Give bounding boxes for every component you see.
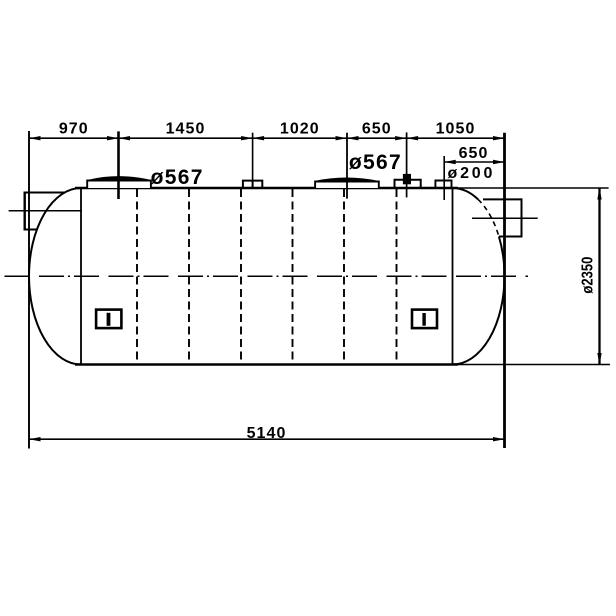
svg-text:1050: 1050 [436, 121, 476, 138]
svg-text:1450: 1450 [166, 121, 206, 138]
svg-text:650: 650 [459, 145, 489, 162]
svg-text:650: 650 [362, 121, 392, 138]
svg-text:1020: 1020 [280, 121, 320, 138]
svg-text:970: 970 [59, 121, 89, 138]
svg-text:ø200: ø200 [448, 165, 496, 182]
svg-text:5140: 5140 [247, 425, 287, 442]
svg-text:ø567: ø567 [349, 151, 402, 174]
svg-text:ø567: ø567 [151, 166, 204, 189]
svg-text:ø2350: ø2350 [579, 257, 596, 294]
